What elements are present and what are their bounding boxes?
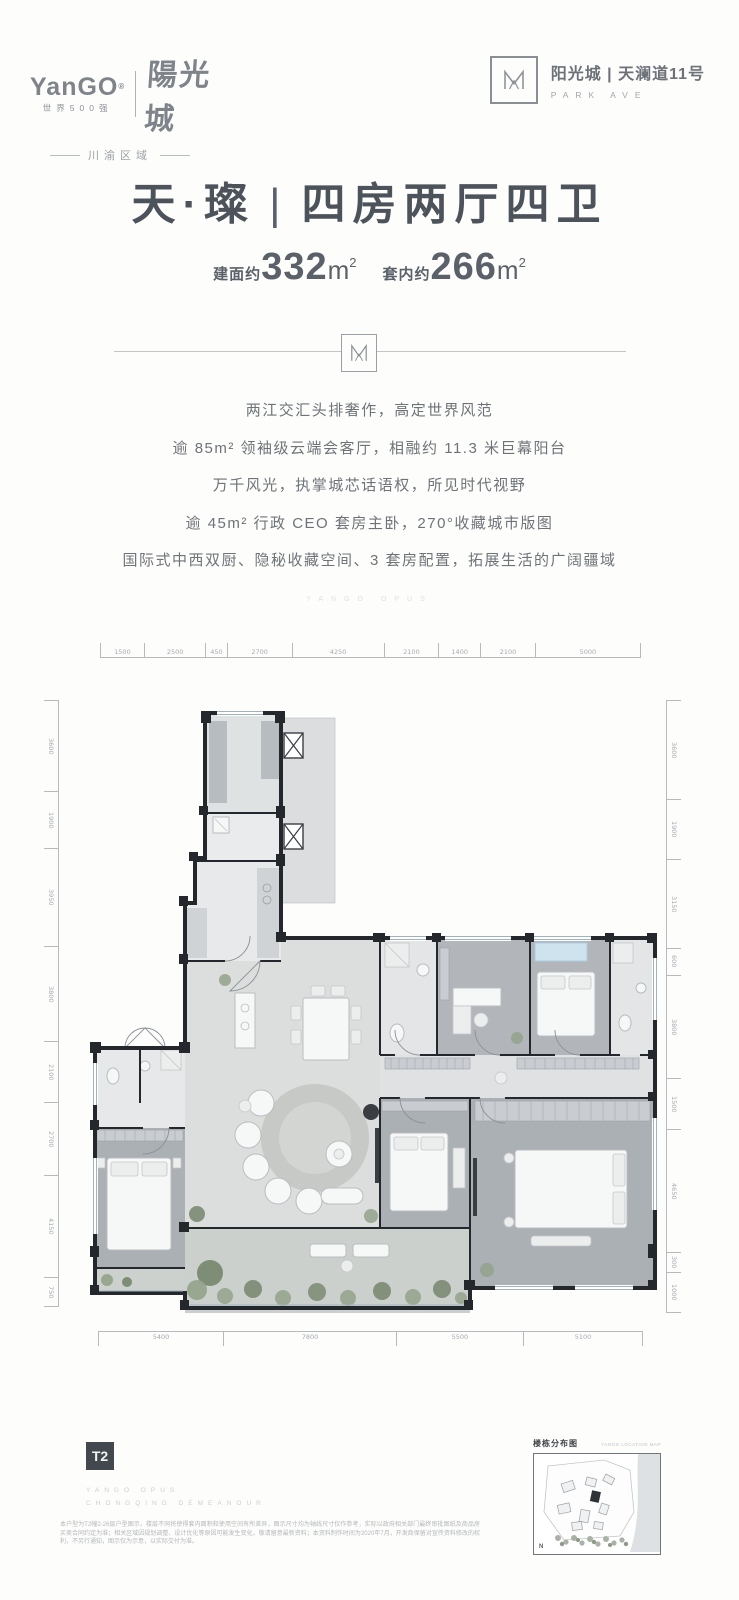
project-names: 阳光城 | 天澜道11号 PARK AVE <box>551 60 705 100</box>
floorplan-svg <box>85 688 657 1324</box>
fortune500-tagline: 世界500强 <box>43 102 113 114</box>
project-name-en: PARK AVE <box>551 90 705 100</box>
net-area-label: 套内约 <box>383 263 431 284</box>
product-name: 天·璨 <box>131 180 255 229</box>
title-separator: | <box>255 180 301 229</box>
selling-points: 两江交汇头排奢作，高定世界风范逾 85m² 领袖级云端会客厅，相融约 11.3 … <box>0 392 739 580</box>
region-dash-right <box>160 155 190 156</box>
faint-watermark: YANGO OPUS <box>0 596 739 603</box>
north-arrow: N <box>539 1544 543 1550</box>
dim-chain-bottom: 5400780055005100 <box>98 1331 643 1346</box>
footer-slogan-en-2: CHONGQING DEMEANOUR <box>86 1500 266 1507</box>
sell-line: 逾 85m² 领袖级云端会客厅，相融约 11.3 米巨幕阳台 <box>0 430 739 468</box>
map-title-en: YANGO LOCATION MAP <box>601 1442 661 1447</box>
dim-cell-h: 7800 <box>224 1332 397 1346</box>
m-logo-glyph <box>499 65 529 95</box>
project-name-cn: 阳光城 | 天澜道11号 <box>551 60 705 84</box>
dim-cell-h: 2100 <box>481 643 535 657</box>
dim-cell-v: 3150 <box>667 860 681 949</box>
region-dash-left <box>50 155 80 156</box>
map-header: 楼栋分布图 YANGO LOCATION MAP <box>533 1438 661 1449</box>
dim-cell-v: 3600 <box>44 701 58 792</box>
layout-spec: 四房两厅四卫 <box>302 180 608 229</box>
dim-cell-h: 450 <box>206 643 227 657</box>
yango-logo-text: YanGO® <box>30 74 125 100</box>
dim-cell-h: 1400 <box>439 643 481 657</box>
brand-divider-line <box>135 71 136 117</box>
dim-cell-h: 5000 <box>536 643 641 657</box>
brand-cn-calligraphy: 陽光城 <box>143 50 213 138</box>
dim-cell-h: 1500 <box>101 643 145 657</box>
divider-m-glyph <box>347 340 371 366</box>
dim-cell-h: 5400 <box>99 1332 224 1346</box>
dim-cell-h: 2500 <box>145 643 206 657</box>
dim-cell-v: 3600 <box>667 701 681 800</box>
project-block: 阳光城 | 天澜道11号 PARK AVE <box>490 56 705 104</box>
dim-cell-h: 5100 <box>524 1332 643 1346</box>
gross-area-unit: m <box>328 255 350 286</box>
net-area-value: 266 <box>431 246 497 289</box>
dim-cell-v: 3800 <box>667 976 681 1079</box>
dim-cell-v: 1500 <box>667 1079 681 1130</box>
dim-cell-h: 2100 <box>385 643 439 657</box>
dim-cell-v: 3950 <box>44 849 58 947</box>
dim-cell-h: 4250 <box>293 643 385 657</box>
dim-cell-h: 2700 <box>228 643 293 657</box>
m-logo-icon <box>490 56 538 104</box>
brand-row: YanGO® 世界500强 陽光城 <box>30 50 210 138</box>
page-title: 天·璨|四房两厅四卫 <box>0 168 739 232</box>
site-map-sketch <box>534 1454 660 1552</box>
dim-cell-v: 4650 <box>667 1130 681 1252</box>
dim-cell-v: 4150 <box>44 1176 58 1278</box>
net-area-sup: 2 <box>519 255 526 270</box>
sell-line: 国际式中西双厨、隐秘收藏空间、3 套房配置，拓展生活的广阔疆域 <box>0 542 739 580</box>
region-label: 川渝区域 <box>88 147 152 163</box>
dim-cell-v: 2700 <box>44 1103 58 1176</box>
dim-chain-left: 3600190039503800210027004150750 <box>44 700 59 1307</box>
net-area-unit: m <box>497 255 519 286</box>
dim-cell-v: 750 <box>44 1278 58 1307</box>
disclaimer-text: 本户型为T2幢2-26层户型图示，楼层不同将使得套内面积和使用空间有所差异，图示… <box>60 1521 480 1547</box>
gross-area-value: 332 <box>261 246 327 289</box>
dim-cell-v: 300 <box>667 1253 681 1273</box>
dim-chain-top: 15002500450270042502100140021005000 <box>100 643 641 658</box>
dim-cell-v: 2100 <box>44 1042 58 1103</box>
dim-cell-v: 3800 <box>44 947 58 1042</box>
gross-area-label: 建面约 <box>213 263 261 284</box>
sell-line: 万千风光，执掌城芯话语权，所见时代视野 <box>0 467 739 505</box>
map-title-cn: 楼栋分布图 <box>533 1438 578 1449</box>
registered-mark: ® <box>118 82 125 91</box>
divider-m-logo-icon <box>341 334 377 372</box>
dim-cell-h: 5500 <box>397 1332 524 1346</box>
gross-area-sup: 2 <box>349 255 356 270</box>
dim-cell-v: 1900 <box>667 800 681 860</box>
dim-cell-v: 600 <box>667 949 681 976</box>
dim-cell-v: 1000 <box>667 1273 681 1313</box>
footer-slogan-en-1: YANGO OPUS <box>86 1487 179 1494</box>
bedroom2-furniture <box>537 972 595 1036</box>
brand-block: YanGO® 世界500强 陽光城 川渝区域 <box>30 50 210 163</box>
tower-badge: T2 <box>86 1442 114 1470</box>
sell-line: 两江交汇头排奢作，高定世界风范 <box>0 392 739 430</box>
sell-line: 逾 45m² 行政 CEO 套房主卧，270°收藏城市版图 <box>0 505 739 543</box>
region-row: 川渝区域 <box>30 147 210 163</box>
poster-page: YanGO® 世界500强 陽光城 川渝区域 阳光城 | 天澜道11号 PARK… <box>0 0 739 1600</box>
yango-logo: YanGO® 世界500强 <box>30 74 125 114</box>
map-box: N <box>533 1453 661 1555</box>
location-map-block: 楼栋分布图 YANGO LOCATION MAP <box>533 1438 661 1555</box>
area-line: 建面约 332 m 2 套内约 266 m 2 <box>0 246 739 289</box>
elevator-core <box>281 718 335 903</box>
dim-chain-right: 3600190031506003800150046503001000 <box>666 700 681 1313</box>
dim-cell-v: 1900 <box>44 792 58 848</box>
